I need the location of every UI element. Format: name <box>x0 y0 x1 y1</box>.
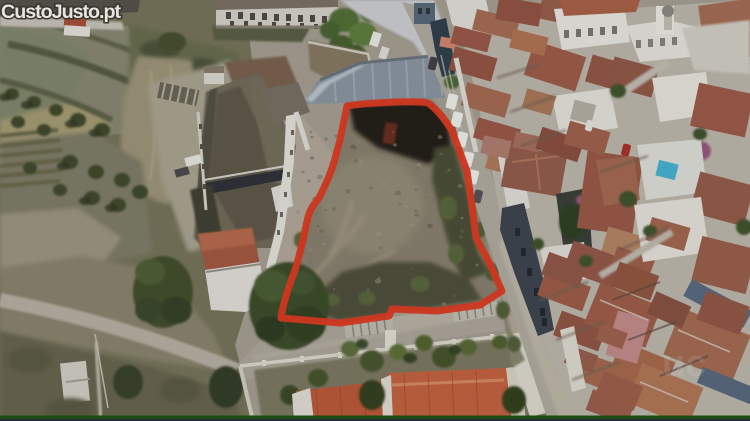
svg-text:CustoJusto.pt: CustoJusto.pt <box>1 2 122 23</box>
